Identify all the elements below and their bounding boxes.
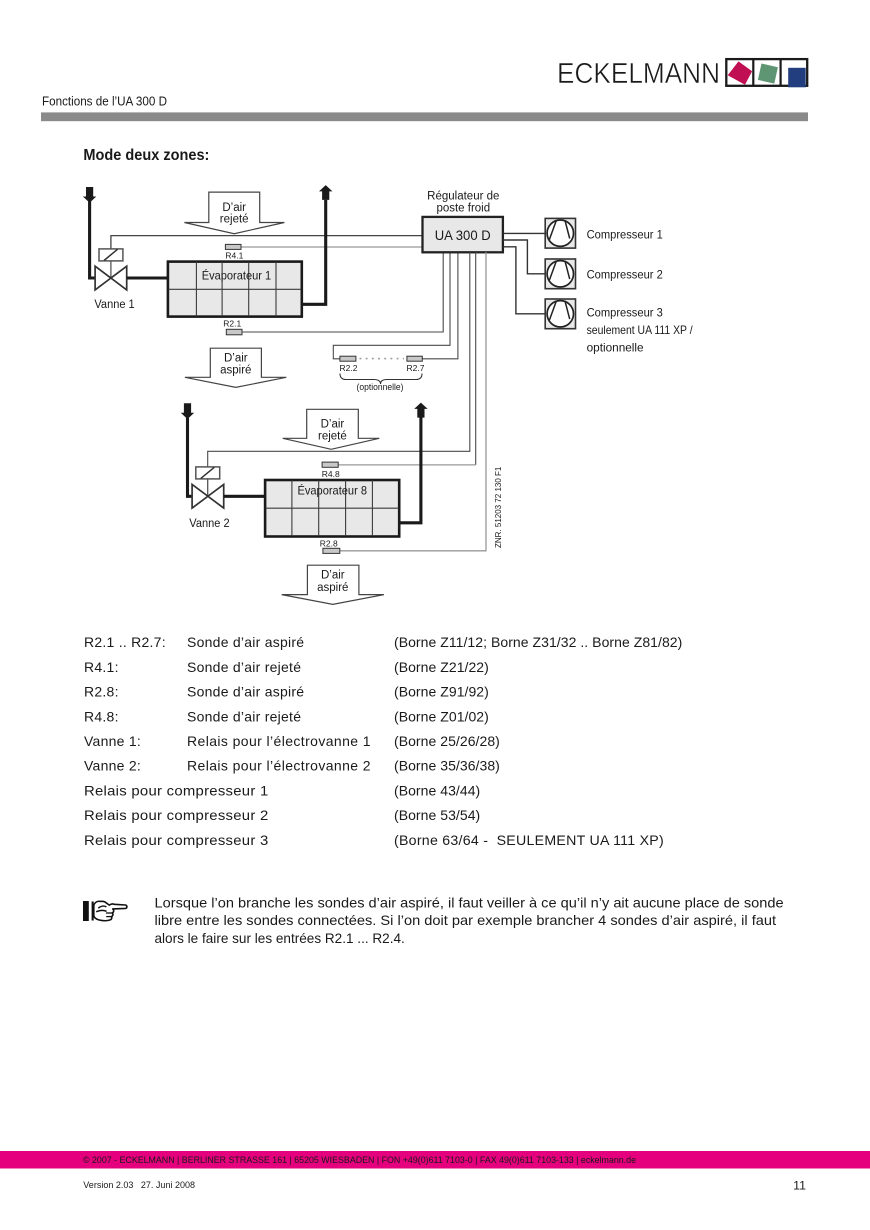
svg-text:R2.1: R2.1 xyxy=(223,319,241,329)
svg-text:R2.7: R2.7 xyxy=(407,363,425,373)
svg-text:Mode deux zones:: Mode deux zones: xyxy=(83,147,209,164)
svg-text:Relais pour l’électrovanne 2: Relais pour l’électrovanne 2 xyxy=(187,758,371,774)
svg-text:Compresseur 2: Compresseur 2 xyxy=(587,267,663,281)
svg-text:R4.1:: R4.1: xyxy=(84,659,119,675)
svg-text:rejeté: rejeté xyxy=(318,430,347,442)
svg-text:(Borne Z11/12; Borne Z31/32 ..: (Borne Z11/12; Borne Z31/32 .. Borne Z81… xyxy=(394,634,682,650)
svg-text:Relais pour l’électrovanne 1: Relais pour l’électrovanne 1 xyxy=(187,733,371,749)
svg-text:R4.1: R4.1 xyxy=(225,250,243,260)
svg-text:(Borne Z21/22): (Borne Z21/22) xyxy=(394,659,489,675)
svg-text:11: 11 xyxy=(793,1179,806,1193)
svg-text:UA 300 D: UA 300 D xyxy=(435,227,491,243)
svg-text:(optionnelle): (optionnelle) xyxy=(357,382,404,392)
svg-text:R4.8:: R4.8: xyxy=(84,708,119,724)
svg-text:(Borne Z91/92): (Borne Z91/92) xyxy=(394,684,489,700)
svg-text:Sonde d’air aspiré: Sonde d’air aspiré xyxy=(187,634,304,650)
svg-text:Compresseur 1: Compresseur 1 xyxy=(587,228,663,242)
svg-text:(Borne 25/26/28): (Borne 25/26/28) xyxy=(394,733,500,749)
svg-text:Évaporateur 8: Évaporateur 8 xyxy=(298,483,368,498)
svg-text:(Borne 43/44): (Borne 43/44) xyxy=(394,782,480,798)
svg-text:Relais pour compresseur 3: Relais pour compresseur 3 xyxy=(84,832,269,848)
svg-text:aspiré: aspiré xyxy=(220,365,251,377)
svg-text:alors le faire sur les entrées: alors le faire sur les entrées R2.1 ... … xyxy=(155,930,405,946)
svg-text:(Borne Z01/02): (Borne Z01/02) xyxy=(394,708,489,724)
svg-text:Relais pour compresseur 2: Relais pour compresseur 2 xyxy=(84,807,269,823)
svg-text:rejeté: rejeté xyxy=(220,214,249,226)
svg-text:aspiré: aspiré xyxy=(317,582,348,594)
svg-text:Sonde d’air aspiré: Sonde d’air aspiré xyxy=(187,684,304,700)
svg-text:R4.8: R4.8 xyxy=(322,469,340,479)
svg-text:poste froid: poste froid xyxy=(436,203,490,215)
svg-text:Vanne 1:: Vanne 1: xyxy=(84,733,141,749)
svg-text:optionnelle: optionnelle xyxy=(587,341,644,355)
svg-text:(Borne 53/54): (Borne 53/54) xyxy=(394,807,480,823)
svg-text:ECKELMANN: ECKELMANN xyxy=(557,58,720,90)
svg-text:R2.8:: R2.8: xyxy=(84,684,119,700)
svg-text:Vanne 2:: Vanne 2: xyxy=(84,758,141,774)
svg-text:libre entre les sondes connect: libre entre les sondes connectées. Si l’… xyxy=(155,912,777,928)
svg-text:Sonde d’air rejeté: Sonde d’air rejeté xyxy=(187,659,301,675)
svg-text:Vanne 1: Vanne 1 xyxy=(94,299,134,311)
svg-text:Régulateur de: Régulateur de xyxy=(427,191,499,203)
svg-text:Relais pour compresseur 1: Relais pour compresseur 1 xyxy=(84,782,269,798)
svg-text:Lorsque l’on branche les sonde: Lorsque l’on branche les sondes d’air as… xyxy=(155,894,784,910)
svg-text:R2.1 .. R2.7:: R2.1 .. R2.7: xyxy=(84,634,166,650)
svg-text:D’air: D’air xyxy=(222,202,246,214)
svg-text:D’air: D’air xyxy=(224,353,248,365)
svg-text:Fonctions de l’UA 300 D: Fonctions de l’UA 300 D xyxy=(42,94,167,108)
svg-text:Compresseur 3: Compresseur 3 xyxy=(587,306,664,320)
svg-text:(Borne 35/36/38): (Borne 35/36/38) xyxy=(394,758,500,774)
svg-text:seulement UA 111 XP /: seulement UA 111 XP / xyxy=(587,323,694,337)
svg-text:Évaporateur 1: Évaporateur 1 xyxy=(202,267,272,282)
svg-text:© 2007 - ECKELMANN | BERLINER: © 2007 - ECKELMANN | BERLINER STRASSE 16… xyxy=(83,1155,636,1165)
svg-text:Vanne 2: Vanne 2 xyxy=(189,518,229,530)
svg-text:(Borne 63/64 - SEULEMENT UA 1: (Borne 63/64 - SEULEMENT UA 111 XP) xyxy=(394,832,664,848)
svg-text:Sonde d’air rejeté: Sonde d’air rejeté xyxy=(187,708,301,724)
svg-text:Version 2.03 27. Juni 2008: Version 2.03 27. Juni 2008 xyxy=(83,1180,195,1191)
svg-text:ZNR. 51203 72 130 F1: ZNR. 51203 72 130 F1 xyxy=(494,466,503,548)
svg-text:D’air: D’air xyxy=(321,419,345,431)
svg-text:R2.8: R2.8 xyxy=(320,538,338,548)
svg-text:R2.2: R2.2 xyxy=(340,363,358,373)
svg-text:D’air: D’air xyxy=(321,570,345,582)
